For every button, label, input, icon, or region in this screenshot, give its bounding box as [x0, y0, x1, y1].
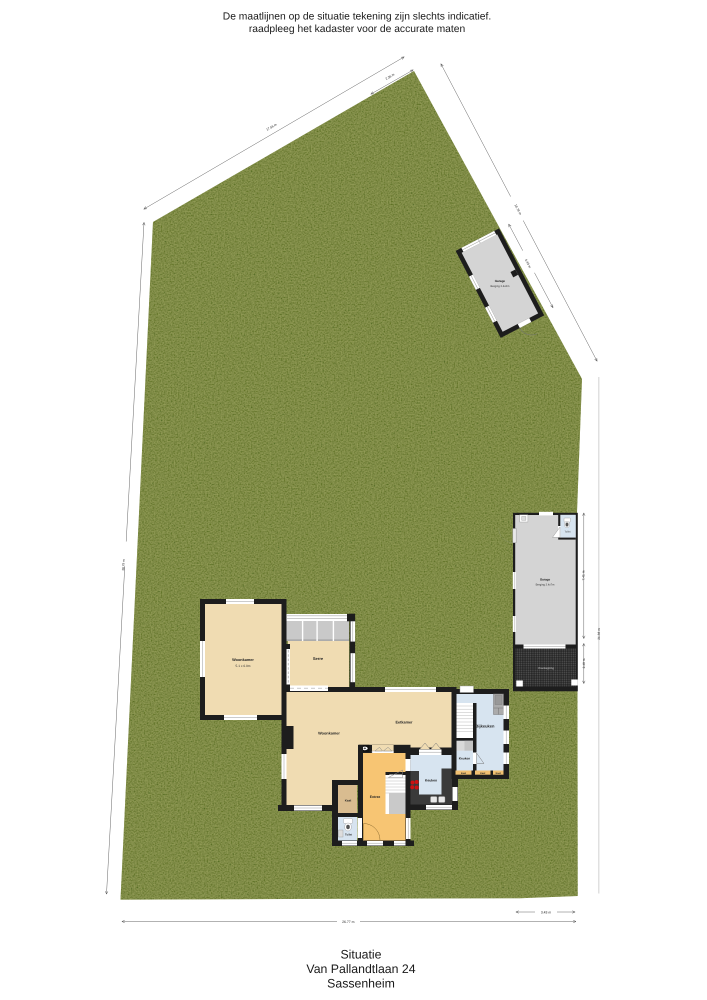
- svg-text:Keuken: Keuken: [459, 757, 471, 761]
- svg-text:Berging 3.4x6m: Berging 3.4x6m: [490, 285, 510, 288]
- svg-text:Keuken: Keuken: [425, 779, 437, 783]
- svg-text:Situatie: Situatie: [340, 948, 381, 962]
- svg-text:raadpleeg het kadaster voor de: raadpleeg het kadaster voor de accurate …: [249, 24, 466, 35]
- svg-text:26.77 m: 26.77 m: [342, 920, 354, 924]
- svg-text:Sassenheim: Sassenheim: [327, 977, 395, 991]
- svg-text:Bijkeuken: Bijkeuken: [476, 724, 495, 729]
- svg-text:Van Pallandtlaan 24: Van Pallandtlaan 24: [306, 962, 415, 976]
- svg-text:Kast: Kast: [480, 772, 485, 775]
- svg-text:Overkapping: Overkapping: [538, 666, 554, 670]
- svg-text:Woonkamer: Woonkamer: [232, 658, 254, 662]
- svg-text:Kast: Kast: [461, 772, 466, 775]
- svg-text:Woonkamer: Woonkamer: [318, 732, 340, 736]
- svg-text:Kast: Kast: [345, 799, 352, 803]
- svg-text:Toilet: Toilet: [564, 531, 570, 534]
- svg-text:2.48 m: 2.48 m: [582, 658, 586, 668]
- svg-text:Eetkamer: Eetkamer: [395, 721, 413, 725]
- svg-text:De maatlijnen op de situatie t: De maatlijnen op de situatie tekening zi…: [223, 12, 491, 23]
- svg-text:5.1 x 6.9m: 5.1 x 6.9m: [236, 664, 251, 668]
- svg-text:Entree: Entree: [370, 795, 381, 799]
- svg-text:Serre: Serre: [313, 656, 324, 661]
- svg-text:Kast: Kast: [496, 772, 501, 775]
- svg-text:Berging 3.4x7m: Berging 3.4x7m: [536, 584, 556, 587]
- svg-text:7.41 m: 7.41 m: [582, 570, 586, 580]
- svg-text:Garage: Garage: [540, 578, 551, 582]
- svg-text:Garage: Garage: [495, 279, 506, 283]
- svg-text:Toilet: Toilet: [345, 834, 352, 837]
- svg-text:3.43 m: 3.43 m: [541, 911, 552, 915]
- svg-text:21.38 m: 21.38 m: [597, 628, 601, 640]
- svg-text:38.79 m: 38.79 m: [121, 559, 126, 571]
